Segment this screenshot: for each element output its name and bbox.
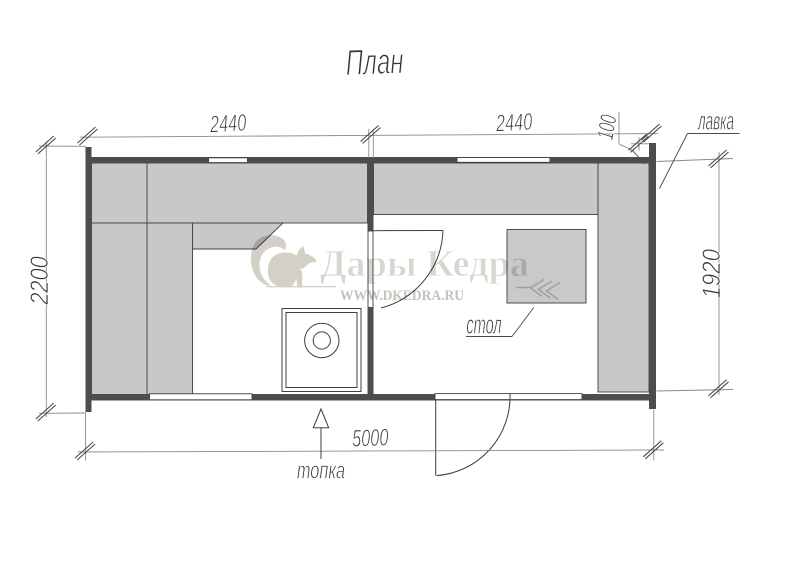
svg-text:2440: 2440	[494, 109, 533, 138]
svg-text:2440: 2440	[208, 110, 247, 139]
svg-text:топка: топка	[297, 457, 345, 484]
svg-text:лавка: лавка	[697, 107, 734, 136]
svg-text:План: План	[345, 41, 404, 83]
svg-text:стол: стол	[466, 311, 501, 339]
svg-text:5000: 5000	[352, 424, 390, 452]
svg-text:1920: 1920	[699, 249, 726, 298]
svg-text:100: 100	[594, 113, 623, 142]
svg-text:Дары Кедра: Дары Кедра	[320, 243, 529, 285]
svg-text:2200: 2200	[26, 256, 54, 305]
svg-text:WWW.DKEDRA.RU: WWW.DKEDRA.RU	[340, 288, 464, 304]
